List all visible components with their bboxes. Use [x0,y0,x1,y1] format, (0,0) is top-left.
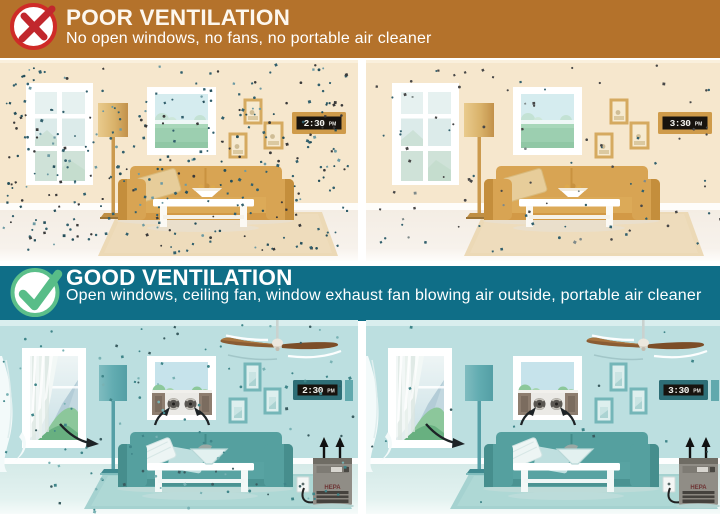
svg-text:HEPA: HEPA [324,485,341,491]
svg-text:PM: PM [327,389,335,395]
svg-text:HEPA: HEPA [690,485,707,491]
svg-text:3:30: 3:30 [668,385,690,396]
svg-text:PM: PM [693,389,701,395]
svg-text:PM: PM [695,122,703,128]
svg-text:3:30: 3:30 [670,118,692,129]
svg-text:PM: PM [329,122,337,128]
